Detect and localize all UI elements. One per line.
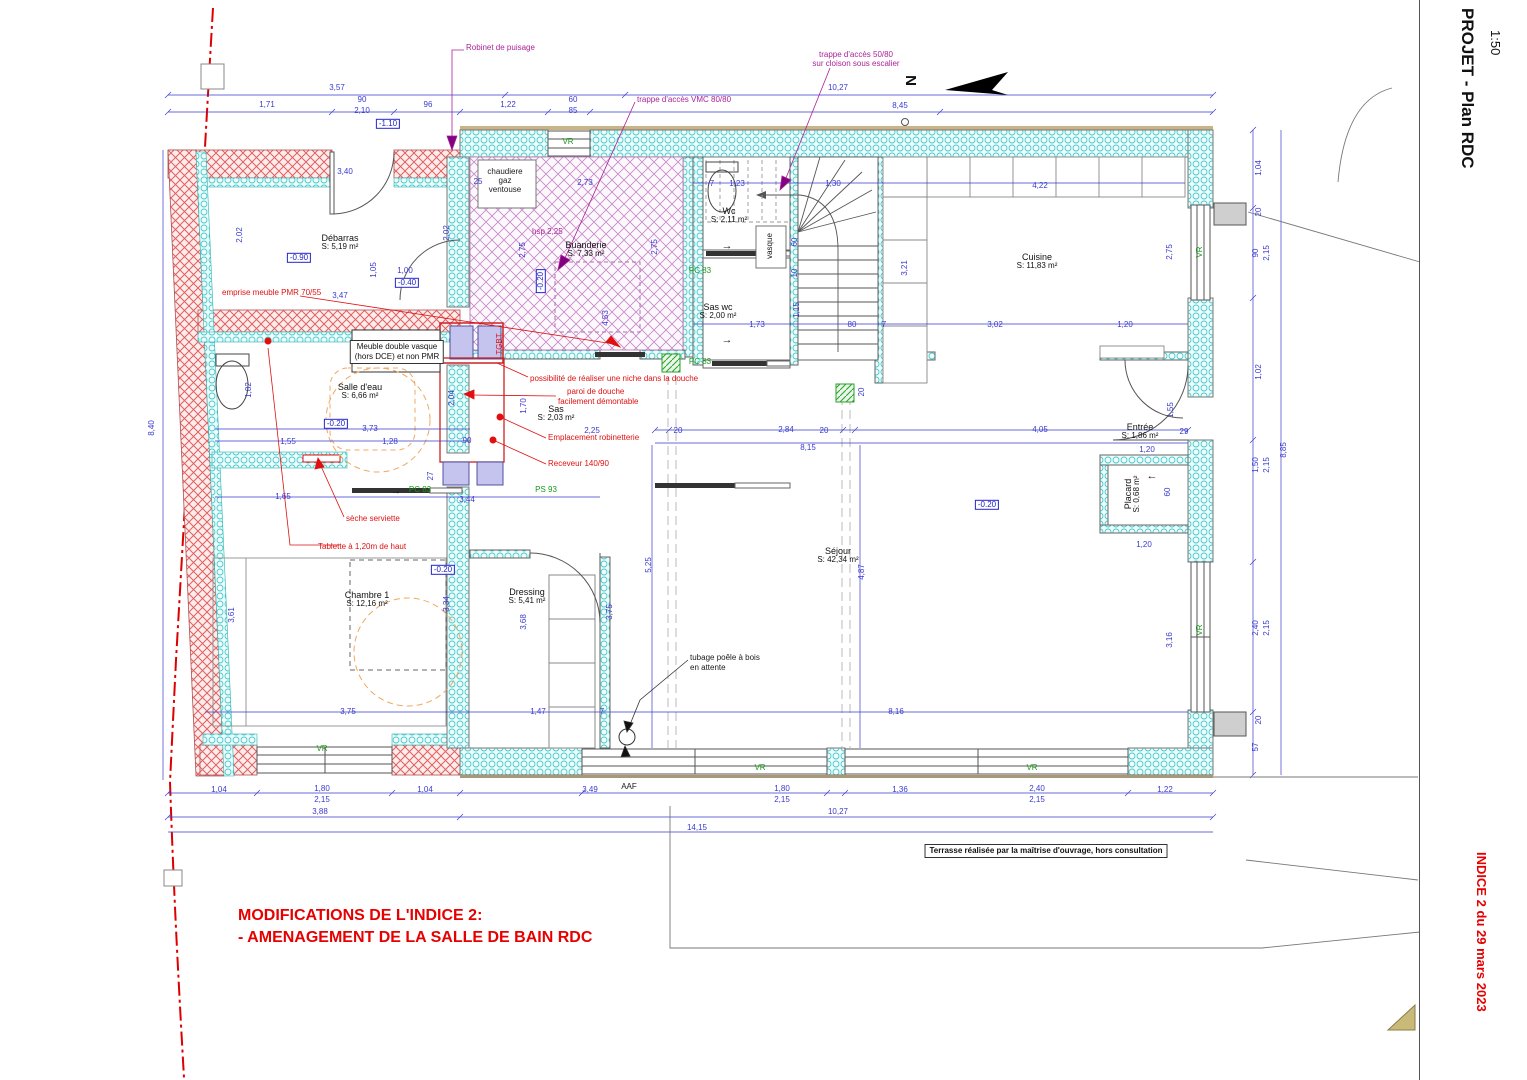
- dimension-label: 2,15: [1263, 245, 1271, 261]
- level-badge: -0.20: [536, 269, 546, 293]
- room-label: WcS: 2,11 m²: [711, 207, 747, 225]
- dimension-label: 1,36: [892, 786, 908, 794]
- dimension-label: 10,27: [828, 808, 848, 816]
- dimension-label: 14,15: [687, 824, 707, 832]
- level-badge: -0.90: [287, 253, 311, 263]
- opening-label: VR: [562, 138, 573, 146]
- room-label: SéjourS: 42,34 m²: [817, 547, 858, 565]
- dimension-label: 2,15: [1029, 796, 1045, 804]
- dimension-label: 1,23: [729, 180, 745, 188]
- annotation-magenta: Robinet de puisage: [466, 44, 535, 52]
- dimension-label: 1,20: [1117, 321, 1133, 329]
- dimension-label: 1,71: [259, 101, 275, 109]
- annotation-black: tubage poêle à bois: [690, 654, 760, 662]
- dimension-label: 90: [358, 96, 367, 104]
- dimension-label: 90: [463, 437, 472, 445]
- dimension-label: 1,50: [1252, 457, 1260, 473]
- direction-arrow: →: [722, 335, 733, 347]
- level-badge: -0.40: [395, 278, 419, 288]
- room-label: CuisineS: 11,83 m²: [1017, 253, 1058, 271]
- dimension-label: 1,04: [1255, 160, 1263, 176]
- dimension-label: 2,40: [1029, 785, 1045, 793]
- annotation-black: en attente: [690, 664, 726, 672]
- dimension-label: 1,55: [1167, 402, 1175, 418]
- dimension-label: 60: [791, 238, 799, 247]
- annotation-magenta: sur cloison sous escalier: [812, 60, 899, 68]
- annotation-red: Tablette à 1,20m de haut: [318, 543, 406, 551]
- level-badge: -0.20: [324, 419, 348, 429]
- dimension-label: 3,47: [332, 292, 348, 300]
- dimension-label: 96: [424, 101, 433, 109]
- room-label: PlacardS: 0,68 m²: [1124, 476, 1142, 513]
- annotation-red: paroi de douche: [567, 388, 624, 396]
- annotation-red: Receveur 140/90: [548, 460, 609, 468]
- dimension-label: 3,16: [1166, 632, 1174, 648]
- dimension-label: 1,22: [1157, 786, 1173, 794]
- dimension-label: 1,05: [370, 262, 378, 278]
- sheet-title: PROJET - Plan RDC: [1457, 8, 1477, 169]
- dimension-label: 8,15: [800, 444, 816, 452]
- dimension-label: 20: [820, 427, 829, 435]
- dimension-label: 3,21: [901, 260, 909, 276]
- dimension-label: 8,40: [148, 420, 156, 436]
- dimension-label: 10,27: [828, 84, 848, 92]
- dimension-label: 3,73: [362, 425, 378, 433]
- annotation-red: facilement démontable: [558, 398, 639, 406]
- level-badge: -0.20: [975, 500, 999, 510]
- opening-label: VR: [1196, 246, 1204, 257]
- room-label: Salle d'eauS: 6,66 m²: [338, 383, 382, 401]
- dimension-label: 1,65: [275, 493, 291, 501]
- dimension-label: 2,75: [519, 242, 527, 258]
- floor-plan-sheet: DébarrasS: 5,19 m²BuanderieS: 7,33 m²WcS…: [0, 0, 1527, 1080]
- annotation-black: AAF: [621, 783, 637, 791]
- dimension-label: 1,70: [520, 398, 528, 414]
- level-badge: -1.10: [376, 119, 400, 129]
- level-badge: -0.20: [431, 565, 455, 575]
- dimension-label: 4,22: [1032, 182, 1048, 190]
- dimension-label: 1,30: [825, 180, 841, 188]
- dimension-label: 4,05: [1032, 426, 1048, 434]
- dimension-label: 2,15: [1263, 620, 1271, 636]
- dimension-label: 8,16: [888, 708, 904, 716]
- dimension-label: 3,61: [228, 607, 236, 623]
- dimension-label: 3,49: [582, 786, 598, 794]
- opening-label: PS 93: [535, 486, 557, 494]
- room-label: SasS: 2,03 m²: [538, 405, 575, 423]
- dimension-label: 1,82: [245, 382, 253, 398]
- dimension-label: 1,73: [749, 321, 765, 329]
- modifications-note: MODIFICATIONS DE L'INDICE 2: - AMENAGEME…: [238, 905, 592, 948]
- dimension-label: 2,02: [236, 227, 244, 243]
- dimension-label: 8,45: [892, 102, 908, 110]
- dimension-label: 2,02: [443, 225, 451, 241]
- annotation-red: possibilité de réaliser une niche dans l…: [530, 375, 698, 383]
- dimension-label: 10: [791, 269, 799, 278]
- dimension-label: 1,02: [1255, 364, 1263, 380]
- plan-labels-layer: DébarrasS: 5,19 m²BuanderieS: 7,33 m²WcS…: [0, 0, 1527, 1080]
- dimension-label: 25: [474, 178, 483, 186]
- meuble-note: Meuble double vasque (hors DCE) et non P…: [350, 340, 444, 364]
- room-label: DébarrasS: 5,19 m²: [321, 234, 358, 252]
- dimension-label: 57: [1252, 743, 1260, 752]
- direction-arrow: ←: [1147, 471, 1158, 483]
- dimension-label: 3,02: [987, 321, 1003, 329]
- opening-label: VR: [1026, 764, 1037, 772]
- dimension-label: 20: [858, 388, 866, 397]
- dimension-label: 1,28: [382, 438, 398, 446]
- dimension-label: 80: [848, 321, 857, 329]
- dimension-label: 1,00: [397, 267, 413, 275]
- dimension-label: 2,10: [354, 107, 370, 115]
- dimension-label: 1,80: [314, 785, 330, 793]
- dimension-label: 27: [427, 472, 435, 481]
- opening-label: PC 83: [689, 267, 711, 275]
- title-block-rule: [1419, 0, 1420, 1080]
- dimension-label: 1,47: [530, 708, 546, 716]
- dimension-label: 3,75: [340, 708, 356, 716]
- dimension-label: 20: [674, 427, 683, 435]
- dimension-label: 3,88: [312, 808, 328, 816]
- dimension-label: 3,34: [443, 596, 451, 612]
- dimension-label: 3,75: [606, 604, 614, 620]
- dimension-label: 3,57: [329, 84, 345, 92]
- dimension-label: 2,40: [1252, 620, 1260, 636]
- dimension-label: 2,75: [1166, 244, 1174, 260]
- north-label: N: [902, 75, 919, 86]
- dimension-label: 5,25: [645, 557, 653, 573]
- annotation-magenta: trappe d'accès VMC 80/80: [637, 96, 731, 104]
- annotation-red: Emplacement robinetterie: [548, 434, 639, 442]
- dimension-label: 8,85: [1280, 442, 1288, 458]
- dimension-label: 29: [1180, 428, 1189, 436]
- dimension-label: 3,68: [520, 614, 528, 630]
- dimension-label: 1,55: [280, 438, 296, 446]
- room-label: EntréeS: 1,86 m²: [1122, 423, 1159, 441]
- annotation-red: TGBT: [496, 333, 504, 354]
- dimension-label: 2,15: [314, 796, 330, 804]
- sheet-scale: 1:50: [1488, 30, 1503, 55]
- dimension-label: 1,20: [1136, 541, 1152, 549]
- dimension-label: 20: [1255, 208, 1263, 217]
- dimension-label: 4,53: [602, 310, 610, 326]
- annotation-magenta: hsp 2,25: [532, 228, 563, 236]
- terrasse-note: Terrasse réalisée par la maîtrise d'ouvr…: [925, 844, 1168, 858]
- dimension-label: 60: [1164, 488, 1172, 497]
- opening-label: VR: [754, 764, 765, 772]
- dimension-label: 1,22: [500, 101, 516, 109]
- direction-arrow: →: [391, 486, 402, 498]
- dimension-label: 90: [1252, 249, 1260, 258]
- opening-label: PC 83: [689, 358, 711, 366]
- dimension-label: 2,04: [448, 390, 456, 406]
- dimension-label: 7: [600, 708, 604, 716]
- dimension-label: 3,40: [337, 168, 353, 176]
- opening-label: PC 83: [409, 486, 431, 494]
- room-label: Chambre 1S: 12,16 m²: [345, 591, 390, 609]
- dimension-label: 20: [1255, 716, 1263, 725]
- room-label: BuanderieS: 7,33 m²: [565, 241, 606, 259]
- opening-label: VR: [316, 745, 327, 753]
- annotation-red: emprise meuble PMR 70/55: [222, 289, 321, 297]
- dimension-label: 1,20: [1139, 446, 1155, 454]
- dimension-label: 1,15: [793, 302, 801, 318]
- dimension-label: 7: [710, 180, 714, 188]
- dimension-label: 2,84: [778, 426, 794, 434]
- dimension-label: 1,04: [417, 786, 433, 794]
- annotation-black: ventouse: [489, 186, 521, 194]
- dimension-label: 2,73: [577, 179, 593, 187]
- room-label: Sas wcS: 2,00 m²: [700, 303, 737, 321]
- dimension-label: 4,87: [858, 564, 866, 580]
- dimension-label: 3,44: [459, 496, 475, 504]
- annotation-black: vasque: [766, 233, 774, 259]
- dimension-label: 60: [569, 96, 578, 104]
- dimension-label: 2,75: [651, 239, 659, 255]
- sheet-revision: INDICE 2 du 29 mars 2023: [1474, 852, 1489, 1012]
- dimension-label: 2,15: [1263, 457, 1271, 473]
- opening-label: VR: [1196, 624, 1204, 635]
- room-label: DressingS: 5,41 m²: [509, 588, 546, 606]
- dimension-label: 2,15: [774, 796, 790, 804]
- dimension-label: 85: [569, 107, 578, 115]
- annotation-red: sèche serviette: [346, 515, 400, 523]
- dimension-label: 7: [882, 321, 886, 329]
- dimension-label: 1,80: [774, 785, 790, 793]
- dimension-label: 1,04: [211, 786, 227, 794]
- direction-arrow: →: [722, 241, 733, 253]
